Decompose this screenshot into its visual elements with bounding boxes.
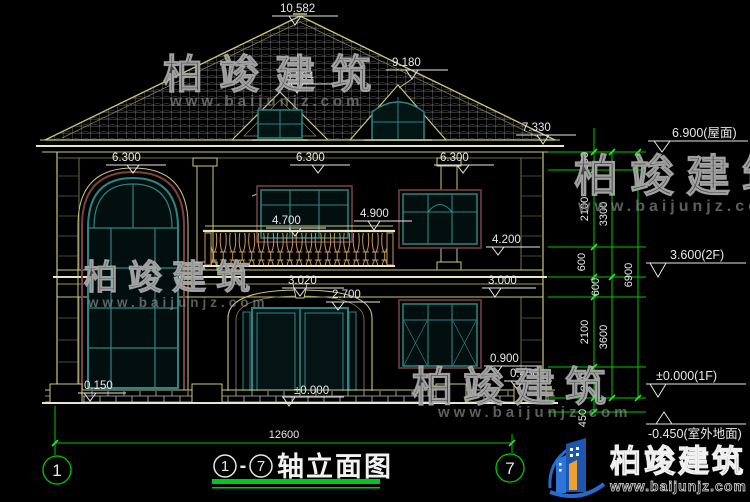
dim-seg-600b: 600 [576,253,588,271]
level-ground-right: -0.450(室外地面) [646,412,746,441]
watermark-url: www.baijunjz.com [437,404,631,421]
level-dormer-right-label: 9.180 [392,57,421,69]
level-floor2-right-label: 3.600(2F) [670,248,724,262]
level-4700-label: 4.700 [272,215,301,227]
level-floor1-right: ±0.000(1F) [646,369,746,397]
dim-seg-2100b: 2100 [579,320,591,344]
level-entrance-label: ±0.000 [294,385,329,397]
level-6300-mid: 6.300 [290,152,350,173]
level-floor2-right: 3.600(2F) [646,248,746,277]
axis-left-label: 1 [52,461,61,480]
level-4900-label: 4.900 [360,208,389,220]
sidelight-left [243,312,250,396]
logo-icon [550,438,604,496]
axis-bubble-right: 7 [496,454,524,482]
logo-brand: 柏竣建筑 [610,444,746,479]
window-1f-right [399,300,481,368]
level-peak-label: 10.582 [280,3,315,15]
dim-total-6900: 6900 [623,263,635,287]
title-separator: - [240,455,247,477]
level-4200: 4.200 [486,234,540,255]
level-4200-label: 4.200 [492,234,521,246]
level-3020-label: 3.020 [288,275,317,287]
level-2700: 2.700 [326,289,380,310]
level-3000-label: 3.000 [488,275,517,287]
title-axis-end: 7 [257,458,265,475]
level-3000: 3.000 [482,275,536,297]
level-roof-right-label: 6.900(屋面) [672,126,737,140]
elevation-drawing: 10.582 8.664 9.180 7.330 6.300 6.300 6.3… [0,0,750,502]
level-6300-mid-label: 6.300 [296,152,325,164]
axis-bubble-left: 1 [43,456,71,484]
level-6300-left-label: 6.300 [112,152,141,164]
watermark-brand: 柏竣建筑 [84,258,260,297]
title-underline [212,479,380,484]
watermark-brand: 柏竣建筑 [574,152,750,201]
level-floor1-right-label: ±0.000(1F) [656,369,717,383]
level-0150-label: 0.150 [84,380,113,392]
cad-viewport: 10.582 8.664 9.180 7.330 6.300 6.300 6.3… [0,0,750,502]
watermark-right: 柏竣建筑 www.baijunjz.com [574,152,750,215]
watermark-brand: 柏竣建筑 [163,53,387,97]
dim-bottom-total: 12600 [269,429,300,441]
logo: 柏竣建筑 www.baijunjz.com [550,438,747,496]
title-underline-thin [212,487,380,489]
watermark-url: www.baijunjz.com [169,93,363,110]
title-block: 1 - 7 轴立面图 [212,451,393,489]
watermark-url: www.baijunjz.com [87,295,269,310]
level-ground-right-label: -0.450(室外地面) [648,426,742,441]
watermark-bottom: 柏竣建筑 www.baijunjz.com [412,364,631,421]
level-eave: 7.330 [516,122,576,144]
watermark-top: 柏竣建筑 www.baijunjz.com [163,53,387,110]
logo-url: www.baijunjz.com [609,478,747,494]
level-2700-label: 2.700 [332,289,361,301]
level-eave-label: 7.330 [522,122,551,134]
watermark-left: 柏竣建筑 www.baijunjz.com [84,258,269,310]
window-2f-right [399,190,481,248]
eave-cornice [36,140,564,152]
sidelight-right [349,312,356,396]
title-text: 轴立面图 [277,451,393,482]
dim-seg-3600: 3600 [598,325,610,349]
watermark-url: www.baijunjz.com [577,198,750,215]
axis-right-label: 7 [505,459,514,478]
title-axis-start: 1 [221,458,229,475]
dim-seg-600c: 600 [590,278,602,296]
level-6300-right-label: 6.300 [440,152,469,164]
level-roof-right: 6.900(屋面) [648,126,748,152]
